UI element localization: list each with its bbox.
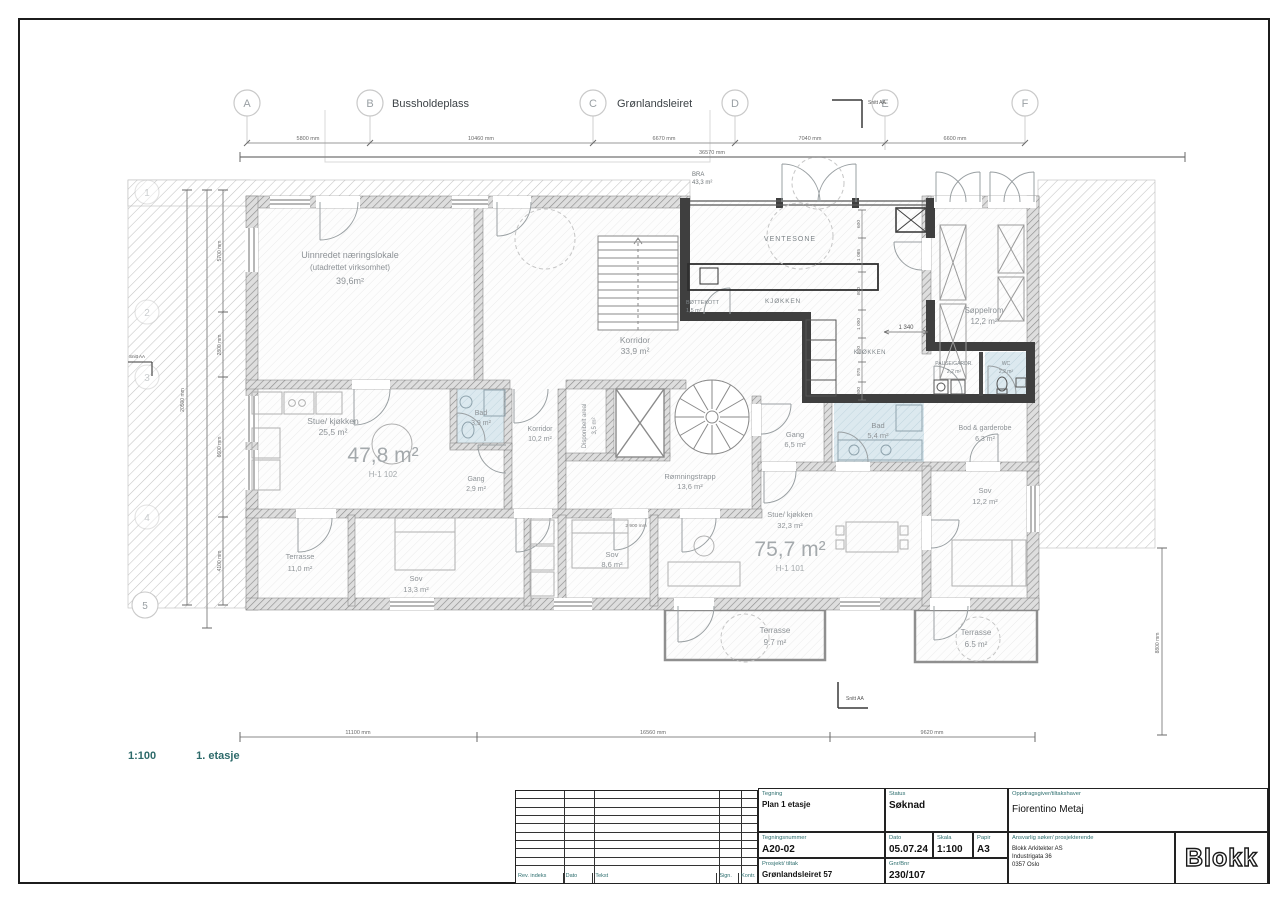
- titleblock-skala: Skala 1:100: [933, 832, 973, 858]
- ansvarlig-label: Ansvarlig søker/ prosjekterende: [1012, 835, 1171, 842]
- floor-plan-svg: A B C D E F Bussholdeplass Grønlandsleir…: [0, 0, 1286, 790]
- room-label-sov2: Sov: [606, 550, 619, 559]
- room-label-soppelrom: Søppelrom: [964, 306, 1003, 315]
- section-label-bottom: Snitt AA: [846, 696, 864, 702]
- room-area-bad2: 5,4 m²: [867, 431, 889, 440]
- titleblock-tegningsnummer: Tegningsnummer A20-02: [758, 832, 885, 858]
- skala-value: 1:100: [937, 844, 969, 855]
- papir-label: Papir: [977, 835, 1004, 842]
- dim-left-2: 2800 mm: [217, 335, 223, 356]
- ansvarlig-line3: 0357 Oslo: [1012, 861, 1171, 869]
- room-area-stue2: 32,3 m²: [777, 521, 803, 530]
- room-area-wc: 2,2 m²: [999, 369, 1014, 375]
- title-block: Rev. indeks Dato Tekst Sign. Kontr. Tegn…: [515, 788, 1268, 884]
- room-label-kjokken2: KJØKKEN: [854, 350, 886, 356]
- prosjekt-label: Prosjekt/ tiltak: [762, 861, 881, 868]
- room-label-terrasse3: Terrasse: [961, 628, 992, 637]
- dato-value: 05.07.24: [889, 844, 929, 855]
- room-area-bad1: 3,9 m²: [471, 420, 492, 427]
- gnrbnr-label: Gnr/Bnr: [889, 861, 1004, 868]
- rev-header-index: Rev. indeks: [516, 873, 564, 883]
- room-area-gang1: 2,9 m²: [466, 486, 487, 493]
- dim-left-1: 5700 mm: [217, 241, 223, 262]
- room-label-naering-1: Uinnredet næringslokale: [301, 250, 399, 260]
- papir-value: A3: [977, 844, 1004, 855]
- room-label-gang2: Gang: [786, 430, 804, 439]
- dim-top-3: 6670 mm: [653, 136, 676, 142]
- section-label-top: Snitt AA: [868, 100, 886, 106]
- room-label-ventesone: VENTESONE: [764, 236, 816, 243]
- room-label-bad1: Bad: [475, 410, 488, 417]
- room-label-korridor2: Korridor: [528, 426, 554, 433]
- tegning-value: Plan 1 etasje: [762, 800, 881, 809]
- room-area-korridor2: 10,2 m²: [528, 436, 552, 443]
- grid-bubble-4: 4: [144, 513, 150, 524]
- room-label-stue1: Stue/ kjøkken: [307, 416, 359, 426]
- dim-sov: 2 900 mm: [625, 523, 646, 529]
- rev-header-sign: Sign.: [717, 873, 739, 883]
- status-value: Søknad: [889, 800, 1004, 811]
- dim-k-6: 975: [856, 368, 862, 376]
- grid-bubble-c: C: [589, 98, 597, 110]
- street-label-bussholdeplass: Bussholdeplass: [392, 98, 470, 110]
- room-label-romningstrapp: Rømningstrapp: [664, 472, 715, 481]
- scale-value: 1:100: [128, 750, 156, 762]
- room-label-wc: WC: [1002, 361, 1011, 367]
- room-area-gang2: 6,5 m²: [784, 440, 806, 449]
- titleblock-ansvarlig: Ansvarlig søker/ prosjekterende Blokk Ar…: [1008, 832, 1175, 884]
- room-label-kjokken1: KJØKKEN: [765, 298, 801, 305]
- dato-label: Dato: [889, 835, 929, 842]
- apartment-area-102: 47,8 m²: [347, 444, 418, 467]
- apartment-id-101: H-1 101: [776, 564, 805, 573]
- room-area-soppelrom: 12,2 m²: [970, 317, 997, 326]
- dim-left-total: 20500 mm: [180, 388, 186, 412]
- room-area-terrasse2: 9.7 m²: [764, 638, 787, 647]
- dim-top-5: 6600 mm: [944, 136, 967, 142]
- dim-k-3: 800: [856, 287, 862, 295]
- titleblock-status: Status Søknad: [885, 788, 1008, 832]
- dim-bottom-1: 11100 mm: [345, 730, 371, 736]
- dim-k-1: 600: [856, 220, 862, 228]
- dim-k-4: 1 000: [856, 318, 862, 330]
- apartment-area-101: 75,7 m²: [754, 538, 825, 561]
- tegningsnummer-label: Tegningsnummer: [762, 835, 881, 842]
- room-area-stue1: 25,5 m²: [319, 427, 348, 437]
- dim-left-3: 6600 mm: [217, 437, 223, 458]
- room-area-terrasse3: 6.5 m²: [965, 640, 988, 649]
- dim-bottom-2: 16560 mm: [640, 730, 666, 736]
- dim-k-7: 800: [856, 387, 862, 395]
- dim-right: 8800 mm: [1155, 633, 1161, 654]
- room-label-bottekott: BØTTEKOTT: [686, 300, 720, 306]
- room-label-korridor1: Korridor: [620, 335, 650, 345]
- room-area-sov1: 12,2 m²: [972, 497, 998, 506]
- dim-top-4: 7040 mm: [799, 136, 822, 142]
- titleblock-dato: Dato 05.07.24: [885, 832, 933, 858]
- room-label-sov3: Sov: [410, 574, 423, 583]
- apartment-id-102: H-1 102: [369, 470, 398, 479]
- dim-k-2: 1 085: [856, 249, 862, 261]
- room-area-sov3: 13,3 m²: [403, 585, 429, 594]
- grid-bubble-1: 1: [144, 188, 150, 199]
- ansvarlig-line2: Industrigata 36: [1012, 853, 1171, 861]
- drawing-sheet: A B C D E F Bussholdeplass Grønlandsleir…: [0, 0, 1286, 900]
- titleblock-papir: Papir A3: [973, 832, 1008, 858]
- grid-bubble-d: D: [731, 98, 739, 110]
- tegning-label: Tegning: [762, 791, 881, 798]
- floor-label: 1. etasje: [196, 750, 239, 762]
- grid-bubble-3: 3: [144, 373, 150, 384]
- room-area-bod: 6,3 m²: [975, 436, 996, 443]
- room-label-naering-2: (utadrettet virksomhet): [310, 263, 390, 272]
- scale-note: 1:1001. etasje: [128, 750, 280, 762]
- room-label-disponibelt: Disponibelt areal: [582, 404, 588, 449]
- room-area-disponibelt: 3,5 m²: [592, 417, 598, 434]
- titleblock-gnrbnr: Gnr/Bnr 230/107: [885, 858, 1008, 884]
- status-label: Status: [889, 791, 1004, 798]
- room-area-romningstrapp: 13,6 m²: [677, 482, 703, 491]
- room-label-sov1: Sov: [979, 486, 992, 495]
- rev-header-tekst: Tekst: [593, 873, 717, 883]
- gnrbnr-value: 230/107: [889, 870, 1004, 881]
- room-area-sov2: 8,6 m²: [601, 560, 623, 569]
- room-label-terrasse2: Terrasse: [760, 626, 791, 635]
- grid-bubble-a: A: [243, 98, 251, 110]
- street-label-gronlandsleiret: Grønlandsleiret: [617, 98, 692, 110]
- dim-left-4: 4100 mm: [217, 551, 223, 572]
- prosjekt-value: Grønlandsleiret 57: [762, 870, 881, 879]
- dim-kitchen-width: 1 340: [898, 325, 914, 331]
- oppdragsgiver-label: Oppdragsgiver/tiltakshaver: [1012, 791, 1264, 798]
- dim-bottom-3: 9620 mm: [921, 730, 944, 736]
- ansvarlig-line1: Blokk Arkitekter AS: [1012, 845, 1171, 853]
- room-area-bottekott: 1,5 m²: [686, 308, 702, 314]
- rev-header-dato: Dato: [564, 873, 594, 883]
- grid-bubble-f: F: [1022, 98, 1029, 110]
- room-label-bod: Bod & garderobe: [959, 425, 1012, 432]
- tegningsnummer-value: A20-02: [762, 844, 881, 855]
- bra-value: 43,3 m²: [692, 180, 712, 186]
- skala-label: Skala: [937, 835, 969, 842]
- room-label-bad2: Bad: [871, 421, 884, 430]
- revision-table: Rev. indeks Dato Tekst Sign. Kontr.: [515, 790, 758, 884]
- section-label-left: Snitt AA: [129, 354, 145, 359]
- blokk-logo: Blokk: [1185, 844, 1258, 873]
- room-area-pause: 2,2 m²: [947, 369, 962, 375]
- room-area-korridor1: 33,9 m²: [621, 346, 650, 356]
- rev-header-kontr: Kontr.: [739, 873, 757, 883]
- titleblock-prosjekt: Prosjekt/ tiltak Grønlandsleiret 57: [758, 858, 885, 884]
- grid-bubble-b: B: [366, 98, 373, 110]
- spiral-stair: [675, 380, 749, 454]
- lift-shaft: [616, 389, 664, 457]
- bra-label: BRA: [692, 172, 704, 178]
- room-label-pause: PAUSE/GARDR.: [935, 361, 972, 367]
- grid-bubble-5: 5: [142, 601, 148, 612]
- room-label-gang1: Gang: [467, 476, 484, 483]
- room-label-naering-3: 39,6m²: [336, 276, 364, 286]
- straight-stair: [598, 236, 678, 330]
- dim-top-total: 36570 mm: [699, 150, 725, 156]
- room-label-stue2: Stue/ kjøkken: [767, 510, 812, 519]
- titleblock-tegning: Tegning Plan 1 etasje: [758, 788, 885, 832]
- room-area-terrasse1: 11,0 m²: [288, 564, 313, 573]
- room-label-terrasse1: Terrasse: [286, 552, 315, 561]
- titleblock-logo-cell: Blokk: [1175, 832, 1268, 884]
- grid-bubble-2: 2: [144, 308, 150, 319]
- oppdragsgiver-value: Fiorentino Metaj: [1012, 804, 1264, 815]
- dim-top-1: 5800 mm: [297, 136, 320, 142]
- dim-top-2: 10460 mm: [468, 136, 494, 142]
- titleblock-oppdragsgiver: Oppdragsgiver/tiltakshaver Fiorentino Me…: [1008, 788, 1268, 832]
